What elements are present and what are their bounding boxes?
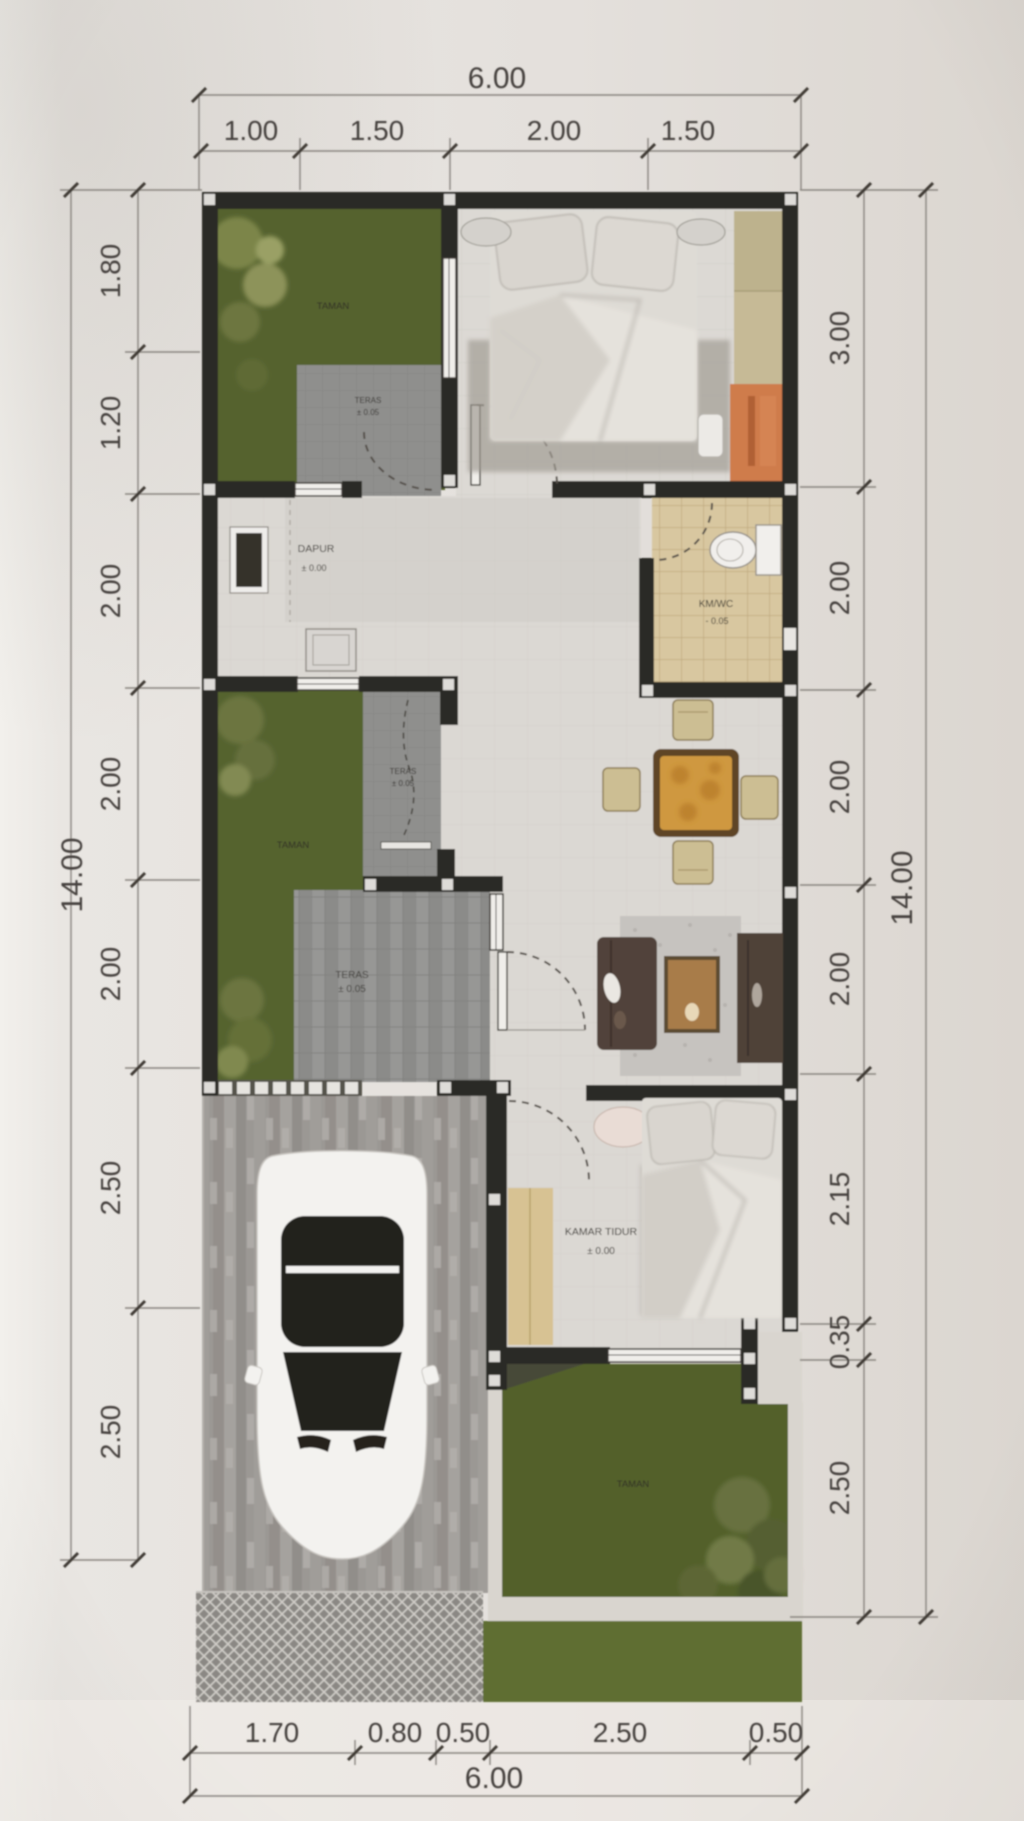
svg-text:2.50: 2.50 [95, 1161, 126, 1216]
svg-text:± 0.00: ± 0.00 [302, 563, 327, 573]
svg-text:2.15: 2.15 [824, 1172, 855, 1227]
svg-text:TAMAN: TAMAN [277, 840, 310, 851]
svg-text:TAMAN: TAMAN [317, 301, 350, 312]
svg-text:6.00: 6.00 [465, 1762, 523, 1795]
svg-text:14.00: 14.00 [56, 837, 89, 912]
svg-text:3.00: 3.00 [824, 311, 855, 366]
svg-text:1.50: 1.50 [350, 115, 405, 146]
svg-text:2.00: 2.00 [95, 757, 126, 812]
svg-text:2.50: 2.50 [95, 1405, 126, 1460]
svg-text:0.50: 0.50 [436, 1717, 491, 1748]
svg-text:± 0.00: ± 0.00 [587, 1246, 615, 1257]
svg-text:2.50: 2.50 [824, 1461, 855, 1516]
svg-text:TAMAN: TAMAN [617, 1479, 650, 1490]
svg-text:0.50: 0.50 [749, 1717, 804, 1748]
svg-text:KM/WC: KM/WC [699, 599, 733, 610]
svg-text:± 0.05: ± 0.05 [392, 779, 415, 788]
svg-text:1.50: 1.50 [661, 115, 716, 146]
svg-text:1.80: 1.80 [95, 244, 126, 299]
svg-text:0.80: 0.80 [368, 1717, 423, 1748]
svg-text:± 0.05: ± 0.05 [357, 408, 380, 417]
svg-text:2.00: 2.00 [527, 115, 582, 146]
svg-text:2.00: 2.00 [824, 952, 855, 1007]
svg-text:2.00: 2.00 [95, 947, 126, 1002]
svg-text:2.50: 2.50 [593, 1717, 648, 1748]
svg-text:0.35: 0.35 [824, 1315, 855, 1370]
svg-text:2.00: 2.00 [95, 564, 126, 619]
svg-text:1.20: 1.20 [95, 396, 126, 451]
svg-text:1.70: 1.70 [245, 1717, 300, 1748]
svg-text:1.00: 1.00 [224, 115, 279, 146]
svg-text:TERAS: TERAS [390, 767, 417, 776]
svg-text:2.00: 2.00 [824, 561, 855, 616]
svg-text:TERAS: TERAS [355, 396, 382, 405]
svg-text:2.00: 2.00 [824, 760, 855, 815]
svg-text:± 0.05: ± 0.05 [338, 984, 366, 995]
svg-text:14.00: 14.00 [886, 850, 919, 925]
svg-text:KAMAR TIDUR: KAMAR TIDUR [565, 1226, 638, 1238]
svg-text:DAPUR: DAPUR [298, 543, 335, 555]
svg-text:6.00: 6.00 [468, 62, 526, 95]
svg-text:TERAS: TERAS [335, 970, 369, 981]
svg-text:- 0.05: - 0.05 [705, 616, 728, 626]
